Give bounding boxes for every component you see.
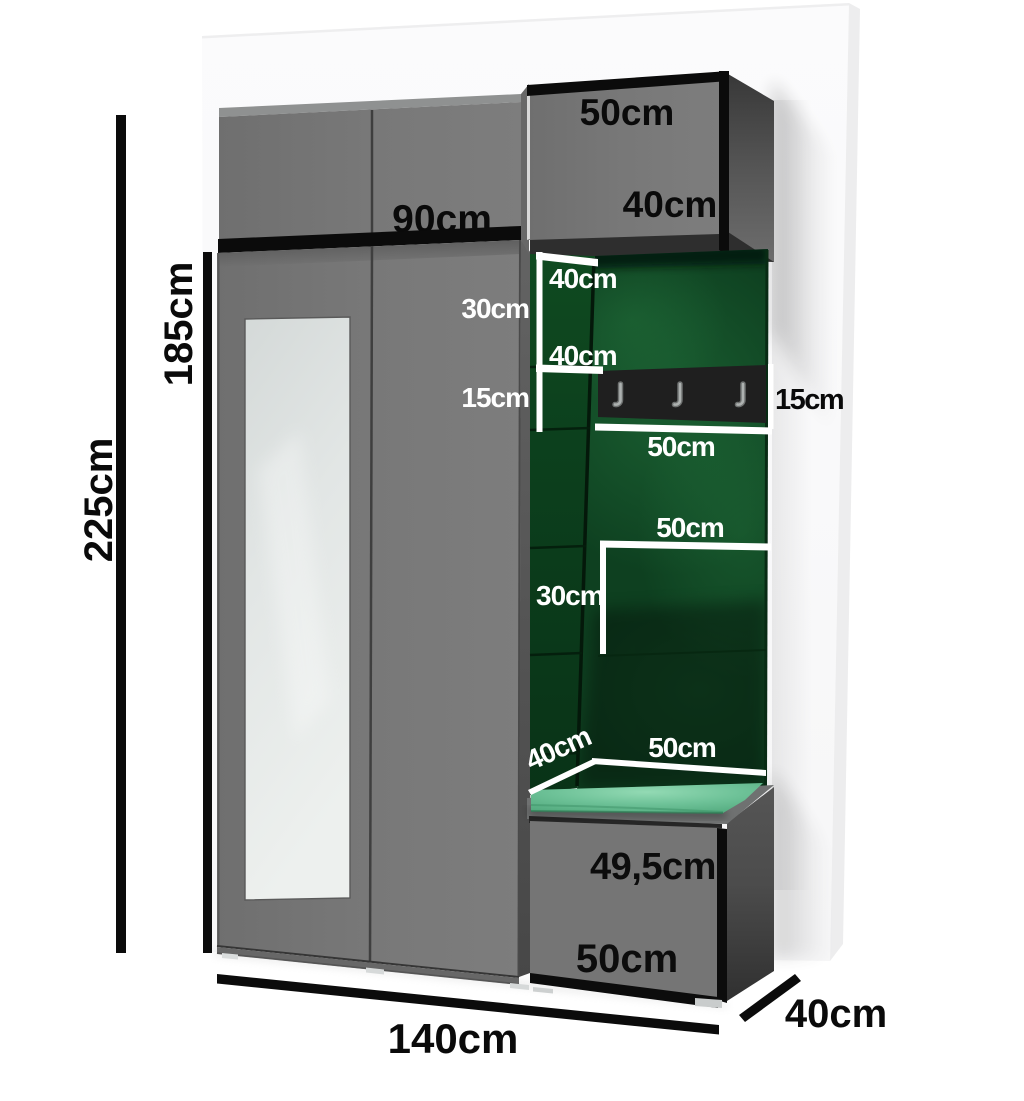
svg-text:50cm: 50cm <box>580 92 675 133</box>
svg-text:50cm: 50cm <box>656 512 724 543</box>
svg-text:50cm: 50cm <box>648 732 716 763</box>
svg-text:40cm: 40cm <box>549 340 617 371</box>
svg-text:50cm: 50cm <box>576 937 678 981</box>
svg-text:49,5cm: 49,5cm <box>590 846 716 888</box>
svg-text:30cm: 30cm <box>536 580 604 611</box>
svg-text:15cm: 15cm <box>461 382 529 413</box>
svg-text:30cm: 30cm <box>461 293 529 324</box>
svg-text:40cm: 40cm <box>549 263 617 294</box>
svg-text:15cm: 15cm <box>775 384 843 416</box>
svg-text:40cm: 40cm <box>623 184 718 225</box>
svg-text:225cm: 225cm <box>77 438 121 563</box>
svg-text:185cm: 185cm <box>157 262 201 387</box>
svg-text:140cm: 140cm <box>388 1015 519 1062</box>
svg-text:40cm: 40cm <box>785 992 887 1036</box>
svg-text:50cm: 50cm <box>647 431 715 462</box>
